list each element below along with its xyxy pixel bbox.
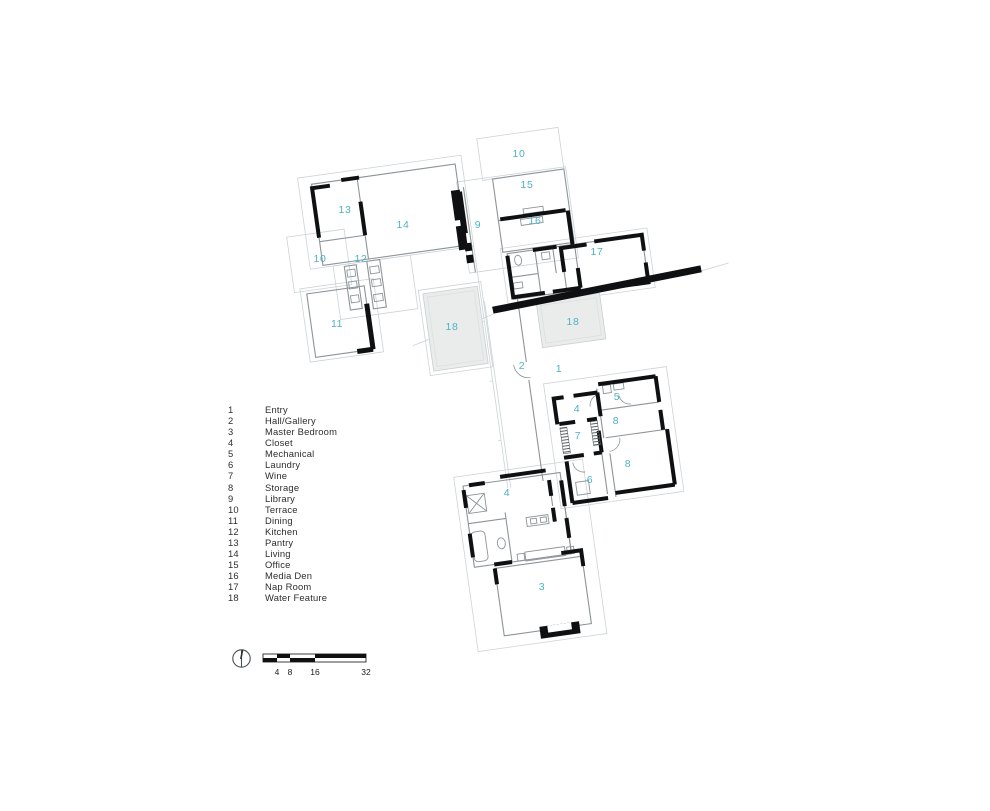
sink bbox=[513, 282, 523, 289]
legend-label: Wine bbox=[265, 470, 287, 481]
legend-label: Closet bbox=[265, 437, 293, 448]
legend-label: Dining bbox=[265, 515, 293, 526]
scale-label-4: 4 bbox=[275, 667, 280, 677]
scale-bar bbox=[263, 654, 366, 662]
legend-item-4: 4Closet bbox=[228, 437, 337, 448]
legend-number: 2 bbox=[228, 415, 265, 426]
legend-label: Pantry bbox=[265, 537, 293, 548]
vanity bbox=[526, 515, 549, 527]
room-label-15: 15 bbox=[521, 179, 534, 191]
floor-plan-drawing: 131412101118910151617182145878643 481632 bbox=[0, 0, 990, 811]
legend-item-10: 10Terrace bbox=[228, 504, 337, 515]
legend-label: Nap Room bbox=[265, 581, 311, 592]
toilet bbox=[497, 537, 506, 549]
legend-label: Terrace bbox=[265, 504, 298, 515]
legend-number: 18 bbox=[228, 592, 265, 603]
legend-label: Kitchen bbox=[265, 526, 298, 537]
legend-item-8: 8Storage bbox=[228, 482, 337, 493]
legend-item-18: 18Water Feature bbox=[228, 592, 337, 603]
legend-item-16: 16Media Den bbox=[228, 570, 337, 581]
legend-number: 11 bbox=[228, 515, 265, 526]
wine-rack bbox=[590, 421, 600, 446]
legend-item-17: 17Nap Room bbox=[228, 581, 337, 592]
legend-number: 12 bbox=[228, 526, 265, 537]
thick-walls bbox=[312, 140, 688, 602]
room-label-12: 12 bbox=[355, 253, 368, 265]
legend-number: 17 bbox=[228, 581, 265, 592]
room-label-11: 11 bbox=[331, 318, 343, 330]
legend-label: Living bbox=[265, 548, 291, 559]
legend-item-3: 3Master Bedroom bbox=[228, 426, 337, 437]
kitchen-cooktop bbox=[370, 266, 380, 274]
legend-number: 5 bbox=[228, 448, 265, 459]
legend-number: 14 bbox=[228, 548, 265, 559]
room-label-17: 17 bbox=[591, 246, 604, 258]
legend-label: Master Bedroom bbox=[265, 426, 337, 437]
building-plan bbox=[277, 106, 777, 669]
legend-label: Laundry bbox=[265, 459, 300, 470]
nightstand bbox=[517, 553, 525, 561]
legend-item-12: 12Kitchen bbox=[228, 526, 337, 537]
floor-plan-page: 131412101118910151617182145878643 481632… bbox=[0, 0, 990, 811]
legend-number: 6 bbox=[228, 459, 265, 470]
legend-label: Entry bbox=[265, 404, 288, 415]
north-arrow-icon bbox=[233, 650, 250, 667]
legend-label: Mechanical bbox=[265, 448, 314, 459]
room-label-2: 2 bbox=[519, 360, 525, 372]
legend-label: Office bbox=[265, 559, 291, 570]
mechanical-unit bbox=[602, 385, 611, 394]
site-lines bbox=[277, 106, 777, 669]
room-label-14: 14 bbox=[397, 219, 410, 231]
legend-label: Media Den bbox=[265, 570, 312, 581]
toilet bbox=[514, 255, 522, 266]
room-label-10: 10 bbox=[314, 253, 327, 265]
legend-number: 3 bbox=[228, 426, 265, 437]
legend-number: 8 bbox=[228, 482, 265, 493]
legend-item-2: 2Hall/Gallery bbox=[228, 415, 337, 426]
legend-item-11: 11Dining bbox=[228, 515, 337, 526]
room-label-18: 18 bbox=[567, 316, 580, 328]
legend-item-9: 9Library bbox=[228, 493, 337, 504]
room-label-1: 1 bbox=[556, 363, 562, 375]
legend-item-6: 6Laundry bbox=[228, 459, 337, 470]
legend-item-14: 14Living bbox=[228, 548, 337, 559]
scale-label-32: 32 bbox=[361, 667, 371, 677]
room-label-9: 9 bbox=[475, 219, 481, 231]
legend-item-15: 15Office bbox=[228, 559, 337, 570]
scale-label-8: 8 bbox=[288, 667, 293, 677]
room-label-7: 7 bbox=[575, 430, 581, 442]
legend-item-5: 5Mechanical bbox=[228, 448, 337, 459]
scale-labels: 481632 bbox=[275, 667, 371, 677]
room-label-8: 8 bbox=[625, 458, 631, 470]
legend-item-7: 7Wine bbox=[228, 470, 337, 481]
legend-number: 16 bbox=[228, 570, 265, 581]
room-label-16: 16 bbox=[529, 215, 542, 227]
legend-number: 4 bbox=[228, 437, 265, 448]
legend-number: 13 bbox=[228, 537, 265, 548]
room-label-4: 4 bbox=[574, 403, 580, 415]
room-label-18: 18 bbox=[446, 321, 459, 333]
thin-walls bbox=[292, 140, 695, 657]
wine-rack bbox=[560, 427, 571, 454]
legend-number: 9 bbox=[228, 493, 265, 504]
legend-label: Hall/Gallery bbox=[265, 415, 316, 426]
legend-label: Library bbox=[265, 493, 295, 504]
legend-number: 1 bbox=[228, 404, 265, 415]
room-label-6: 6 bbox=[587, 474, 593, 486]
room-label-5: 5 bbox=[614, 391, 620, 403]
legend-item-1: 1Entry bbox=[228, 404, 337, 415]
room-label-10: 10 bbox=[513, 148, 526, 160]
scale-label-16: 16 bbox=[310, 667, 320, 677]
legend-label: Water Feature bbox=[265, 592, 327, 603]
room-label-13: 13 bbox=[339, 204, 352, 216]
kitchen-sink bbox=[347, 269, 356, 277]
legend-number: 15 bbox=[228, 559, 265, 570]
legend-number: 10 bbox=[228, 504, 265, 515]
legend-item-13: 13Pantry bbox=[228, 537, 337, 548]
legend: 1Entry2Hall/Gallery3Master Bedroom4Close… bbox=[228, 404, 337, 603]
legend-number: 7 bbox=[228, 470, 265, 481]
room-label-8: 8 bbox=[613, 415, 619, 427]
legend-label: Storage bbox=[265, 482, 299, 493]
room-label-3: 3 bbox=[539, 581, 545, 593]
room-label-4: 4 bbox=[504, 487, 510, 499]
